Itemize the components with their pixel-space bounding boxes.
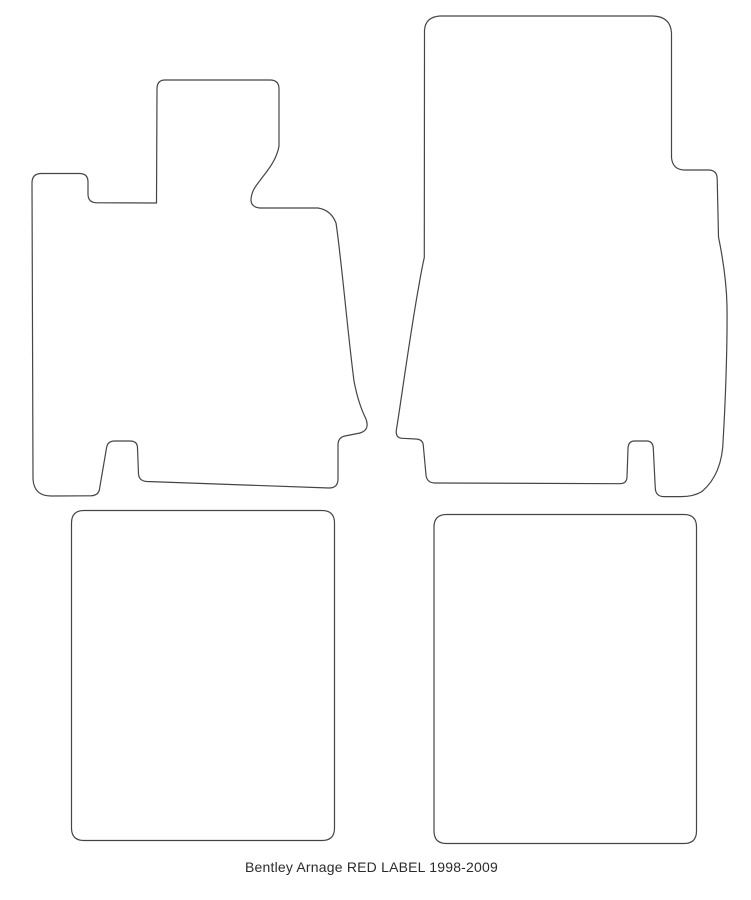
diagram-caption: Bentley Arnage RED LABEL 1998-2009 [0,859,743,876]
front-right-mat-outline [396,16,727,497]
mat-template-page: Bentley Arnage RED LABEL 1998-2009 [0,0,751,900]
mat-set-diagram [0,0,751,900]
rear-right-mat-outline [434,515,697,844]
front-left-mat-outline [32,80,367,496]
rear-left-mat-outline [72,511,335,841]
